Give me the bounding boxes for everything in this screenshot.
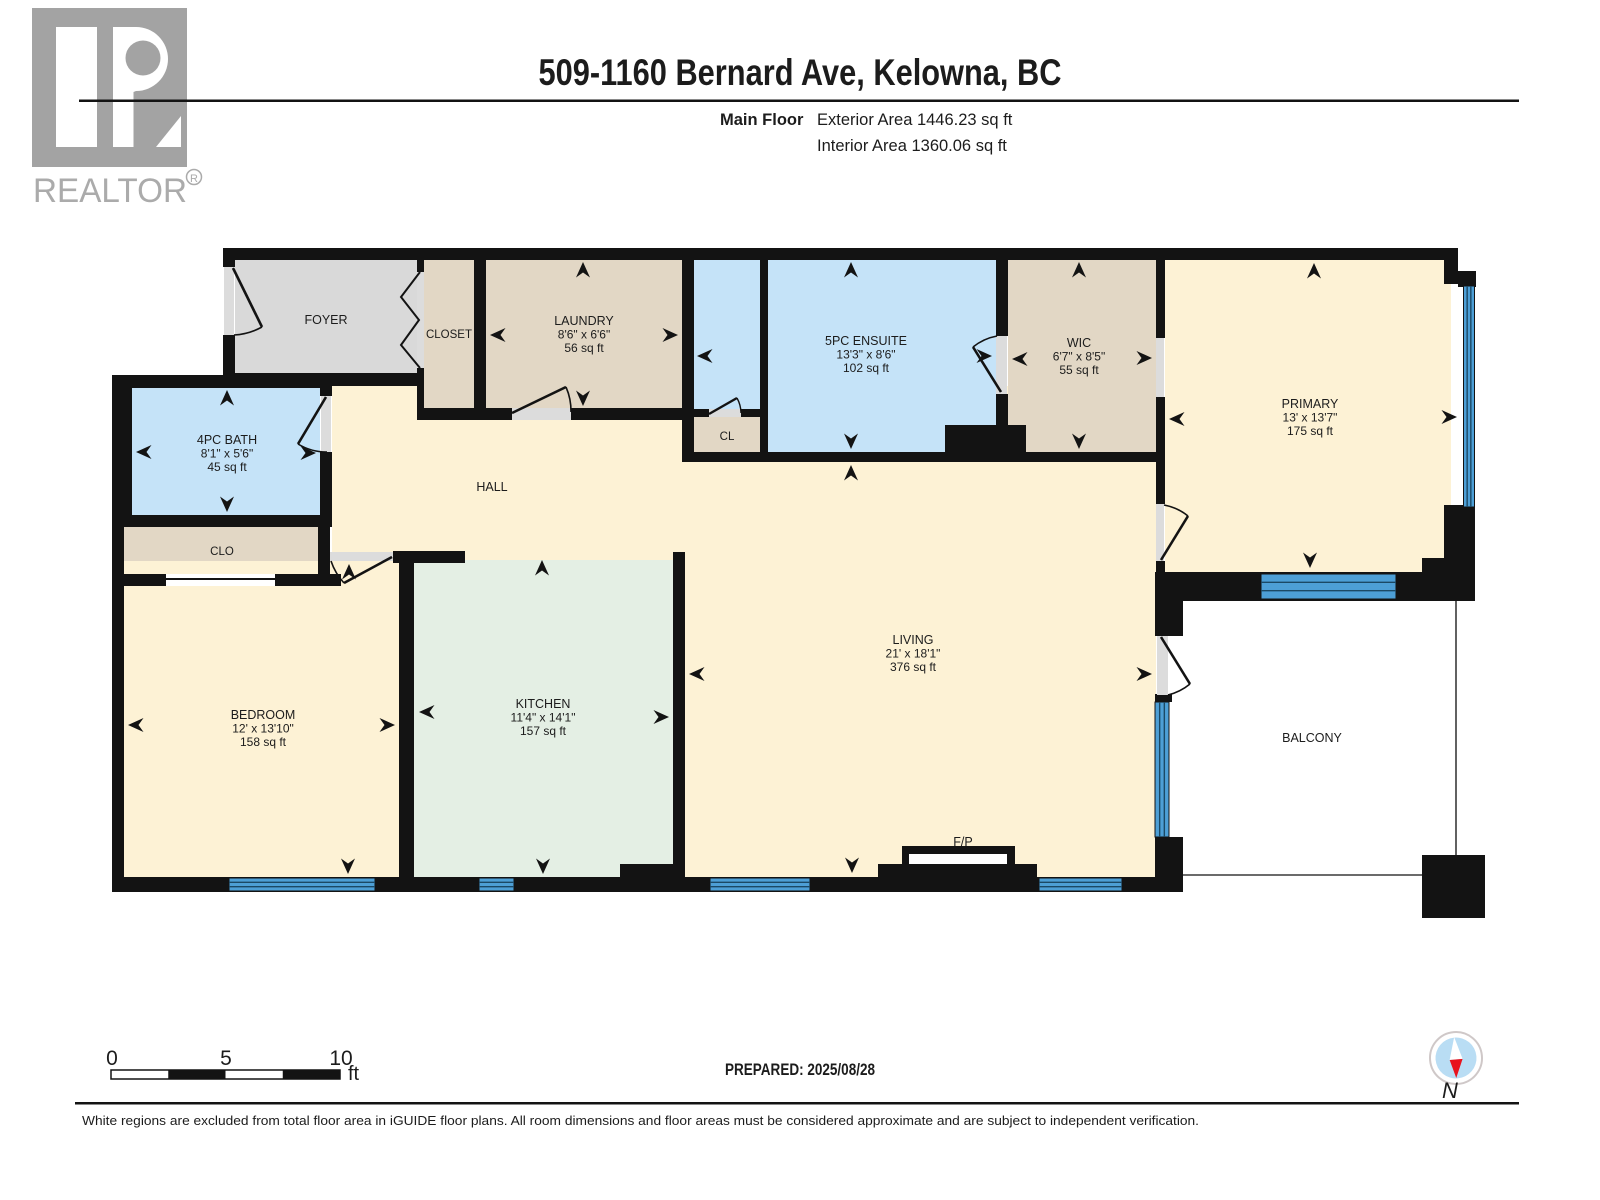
svg-text:157 sq ft: 157 sq ft (520, 724, 567, 738)
svg-text:21' x 18'1": 21' x 18'1" (886, 647, 941, 661)
svg-text:175 sq ft: 175 sq ft (1287, 424, 1334, 438)
svg-text:11'4" x 14'1": 11'4" x 14'1" (511, 711, 576, 725)
svg-text:WIC: WIC (1067, 336, 1091, 350)
svg-text:N: N (1442, 1078, 1458, 1103)
svg-text:CLO: CLO (210, 546, 234, 558)
svg-text:CLOSET: CLOSET (426, 329, 472, 341)
svg-text:R: R (190, 173, 198, 185)
svg-text:PREPARED: 2025/08/28: PREPARED: 2025/08/28 (725, 1061, 875, 1079)
svg-text:0: 0 (106, 1047, 118, 1070)
svg-text:REALTOR: REALTOR (33, 172, 187, 210)
svg-text:KITCHEN: KITCHEN (516, 697, 571, 711)
svg-text:FOYER: FOYER (304, 313, 347, 327)
svg-text:376 sq ft: 376 sq ft (890, 660, 937, 674)
svg-text:6'7" x 8'5": 6'7" x 8'5" (1053, 350, 1105, 364)
svg-text:158 sq ft: 158 sq ft (240, 735, 287, 749)
svg-text:12' x 13'10": 12' x 13'10" (232, 722, 294, 736)
svg-text:Interior Area 1360.06 sq ft: Interior Area 1360.06 sq ft (817, 137, 1007, 155)
svg-text:509-1160 Bernard Ave, Kelowna,: 509-1160 Bernard Ave, Kelowna, BC (539, 52, 1062, 93)
svg-text:ft: ft (348, 1063, 360, 1085)
svg-text:55 sq ft: 55 sq ft (1059, 363, 1099, 377)
svg-text:LIVING: LIVING (893, 633, 934, 647)
svg-text:102 sq ft: 102 sq ft (843, 361, 890, 375)
svg-text:13' x 13'7": 13' x 13'7" (1283, 411, 1338, 425)
svg-text:8'6" x 6'6": 8'6" x 6'6" (558, 328, 610, 342)
svg-text:White regions are excluded fro: White regions are excluded from total fl… (82, 1113, 1199, 1128)
svg-text:HALL: HALL (476, 480, 507, 494)
svg-text:56 sq ft: 56 sq ft (564, 341, 604, 355)
svg-text:LAUNDRY: LAUNDRY (554, 314, 614, 328)
svg-text:13'3" x 8'6": 13'3" x 8'6" (836, 348, 895, 362)
svg-text:BALCONY: BALCONY (1282, 731, 1342, 745)
svg-text:CL: CL (720, 431, 735, 443)
svg-text:Exterior Area 1446.23 sq ft: Exterior Area 1446.23 sq ft (817, 111, 1013, 129)
svg-text:5PC ENSUITE: 5PC ENSUITE (825, 334, 907, 348)
svg-text:4PC BATH: 4PC BATH (197, 433, 257, 447)
svg-text:8'1" x 5'6": 8'1" x 5'6" (201, 447, 253, 461)
svg-text:BEDROOM: BEDROOM (231, 708, 296, 722)
svg-text:5: 5 (220, 1047, 232, 1070)
svg-text:Main Floor: Main Floor (720, 111, 804, 129)
svg-text:45 sq ft: 45 sq ft (207, 460, 247, 474)
svg-text:PRIMARY: PRIMARY (1282, 397, 1339, 411)
